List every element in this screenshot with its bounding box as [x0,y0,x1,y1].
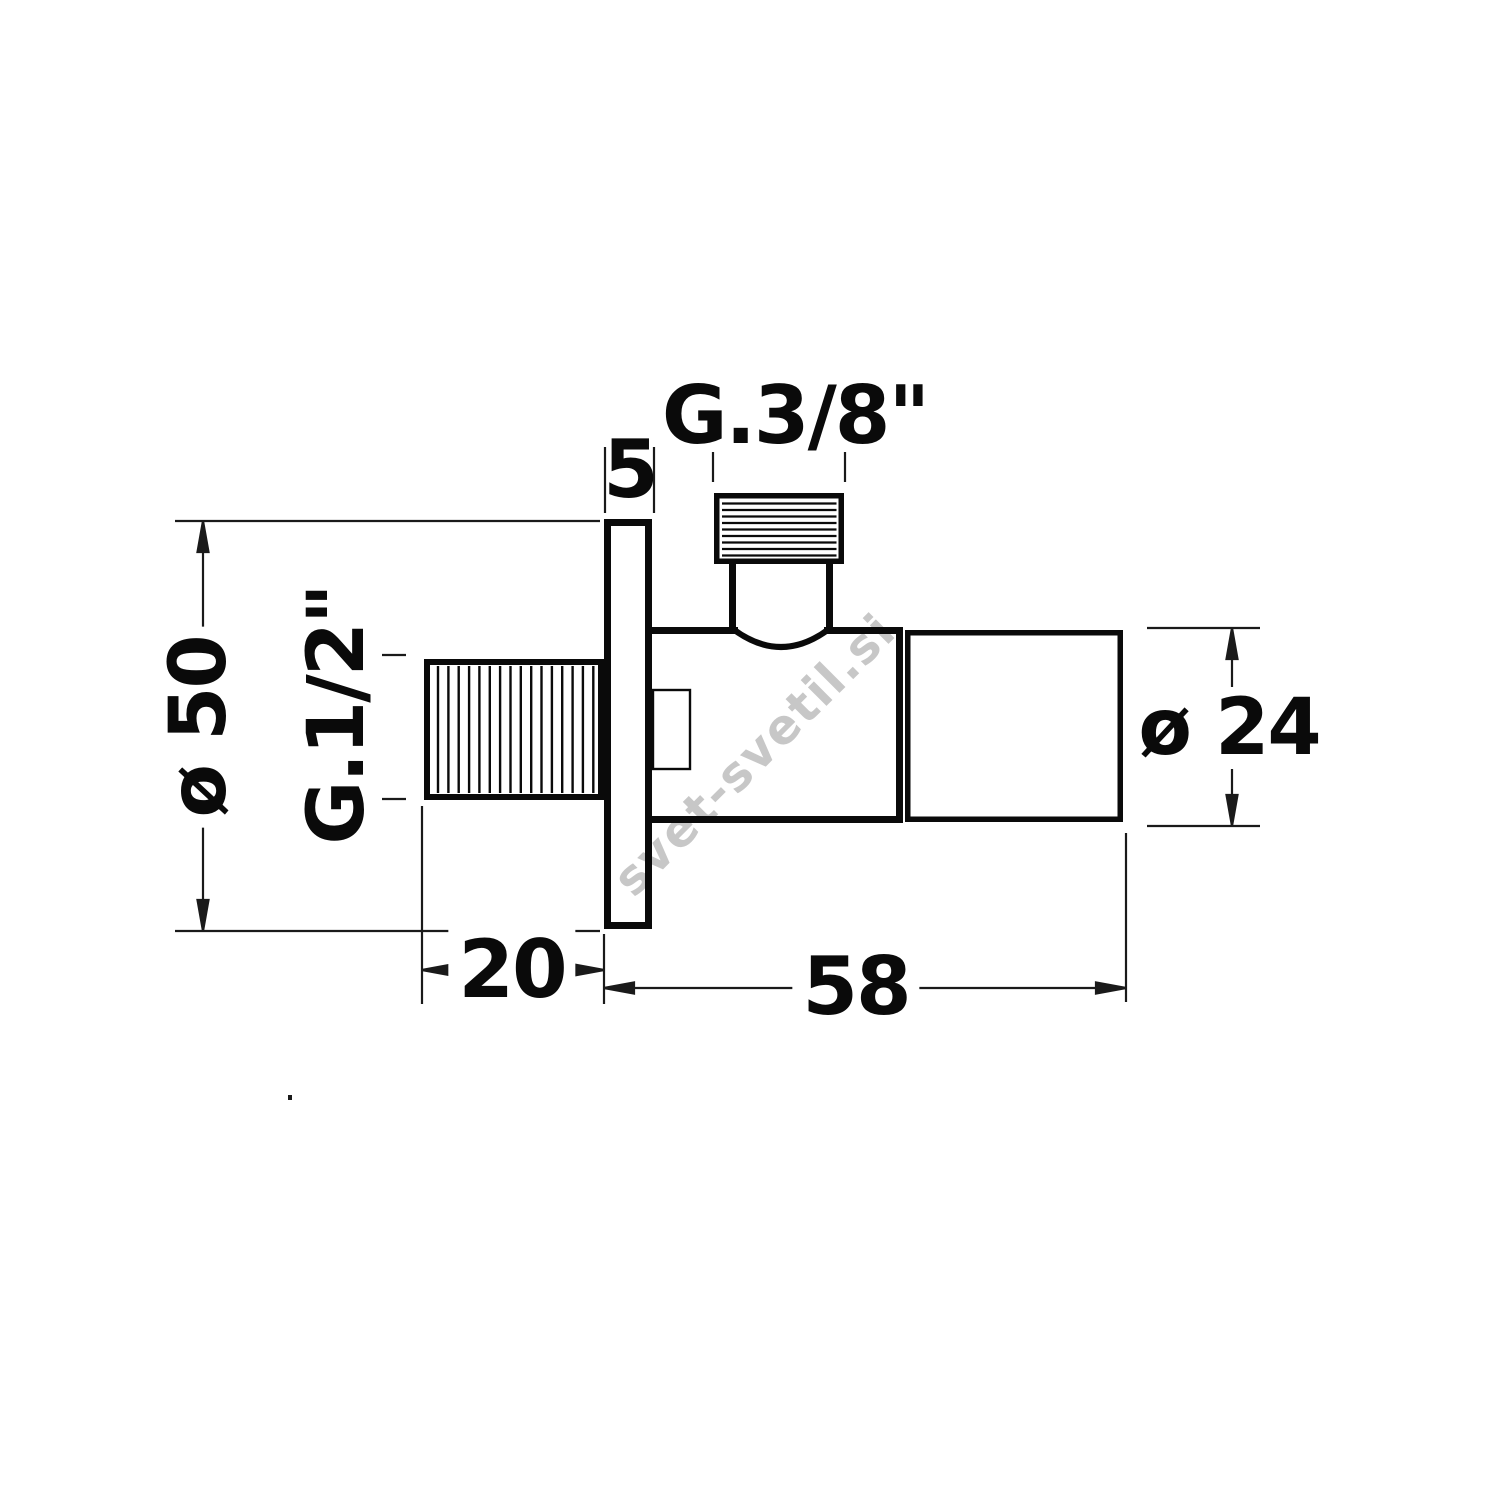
dim-inlet-length-arrow-right [574,965,604,976]
inlet-length-label: 20 [448,928,575,1012]
dim-inlet-thread-ticks [382,655,406,799]
body-detail-fill [652,689,691,770]
inlet-thread-label: G.1/2" [298,585,376,844]
artifact-dot [288,1095,292,1100]
top-thread-label: G.3/8" [662,376,928,456]
body-length-label: 58 [792,945,919,1029]
dim-flange-dia-arrow-top [198,521,209,552]
outlet-neck-fill [729,560,833,633]
inlet-pipe-fill [424,659,604,800]
dim-body-length-arrow-left [604,983,634,994]
technical-drawing-canvas: svet-svetil.si [0,0,1500,1500]
flange-thickness-label: 5 [603,430,657,510]
flange-diameter-label: ø 50 [158,626,240,827]
dim-body-length-arrow-right [1096,983,1126,994]
dim-body-dia-arrow-top [1227,628,1238,659]
body-diameter-label: ø 24 [1128,687,1329,769]
dim-flange-dia-arrow-bottom [198,900,209,931]
handle-fill [905,630,1123,822]
dim-body-dia-arrow-bottom [1227,795,1238,826]
